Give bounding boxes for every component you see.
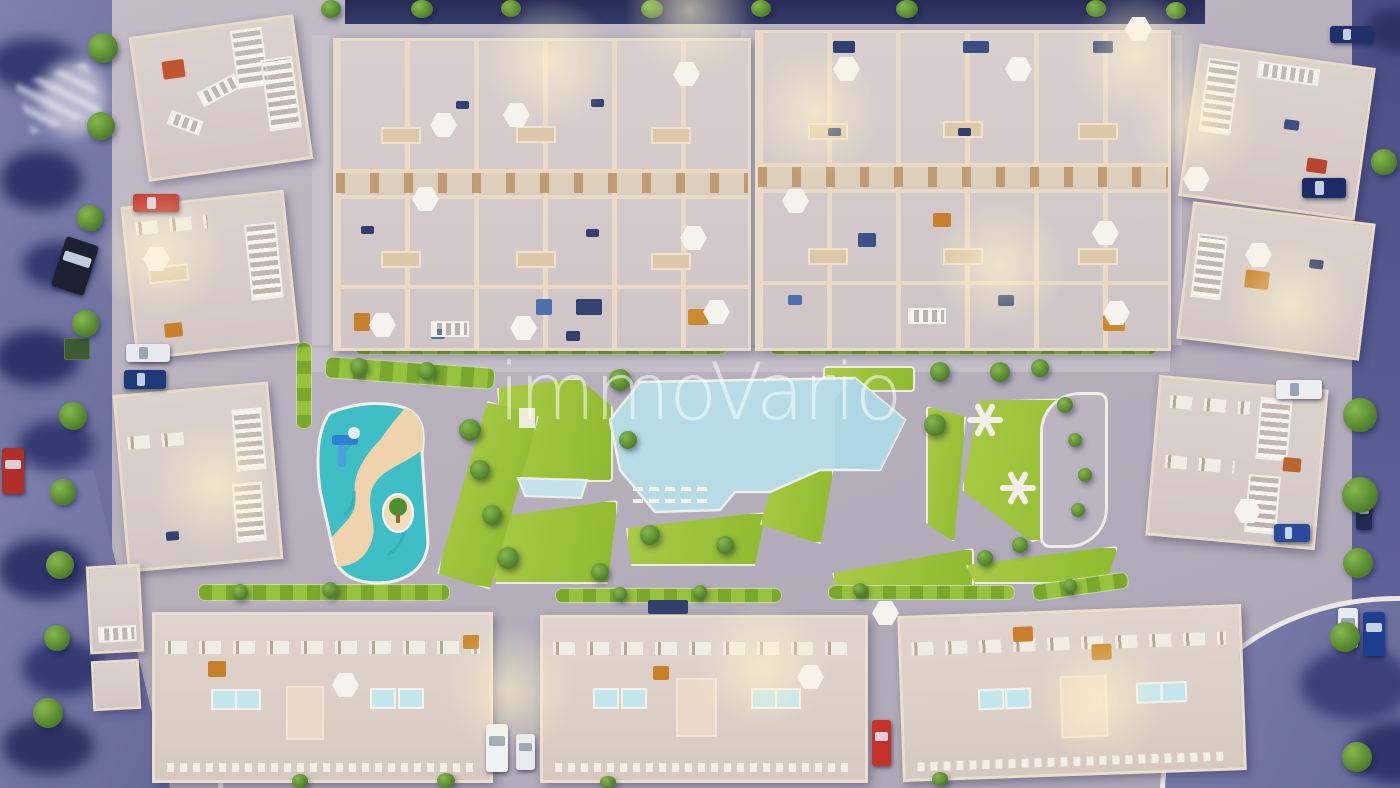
rooftop-planter <box>808 248 848 265</box>
garden-tree <box>1057 397 1073 413</box>
garden-tree <box>924 414 946 436</box>
street-tree <box>751 0 771 17</box>
shadow-blob <box>0 538 90 600</box>
aerial-render-scene: immoVario <box>0 0 1400 788</box>
car-navy <box>1302 178 1346 198</box>
orange-seating <box>164 322 183 338</box>
shadow-blob <box>18 420 94 470</box>
planter-spine <box>758 167 1168 187</box>
car-white <box>516 734 535 770</box>
top-street <box>345 0 1205 24</box>
rooftop-plunge-pool <box>775 688 801 709</box>
window-cluster <box>1093 41 1113 53</box>
window-row <box>1170 395 1251 415</box>
roof-railing <box>1255 397 1292 462</box>
street-tree <box>33 698 63 728</box>
roof-railing <box>232 481 267 542</box>
garden-tree <box>1012 537 1028 553</box>
street-tree <box>437 773 455 788</box>
rooftop-planter <box>516 126 556 143</box>
orange-seating <box>463 635 479 649</box>
rooftop-planter <box>381 127 421 144</box>
orange-seating <box>1091 644 1112 661</box>
patio-furniture <box>788 295 802 305</box>
left-building-2 <box>120 190 299 360</box>
right-building-1 <box>1178 43 1376 220</box>
balcony-row <box>917 752 1229 772</box>
rooftop-plunge-pool <box>370 688 396 709</box>
orange-seating <box>161 59 185 80</box>
window-row <box>127 432 190 450</box>
bottom-middle-building-block <box>540 615 868 783</box>
winding-path <box>1040 392 1108 548</box>
patio-table <box>1283 119 1299 131</box>
window-row <box>165 641 480 654</box>
garden-tree <box>930 362 950 382</box>
hedge-tree <box>853 583 867 597</box>
garden-tree <box>470 460 490 480</box>
rooftop-plunge-pool <box>211 689 237 710</box>
roof-railing <box>1256 61 1320 86</box>
street-tree <box>292 774 308 788</box>
street-tree <box>72 310 99 337</box>
stair-core <box>676 678 717 737</box>
garden-tree <box>497 547 519 569</box>
rooftop-planter <box>1078 248 1118 265</box>
window-cluster <box>963 41 989 53</box>
patio-table <box>586 229 599 237</box>
street-tree <box>1342 477 1378 513</box>
patio-table <box>1309 259 1324 270</box>
orange-seating <box>208 661 226 677</box>
balcony-row <box>167 763 477 772</box>
shadow-blob <box>1300 648 1400 720</box>
street-tree <box>1330 622 1360 652</box>
window-row <box>911 632 1226 656</box>
roof-railing <box>1198 58 1240 136</box>
street-tree <box>321 0 341 18</box>
rooftop-plunge-pool <box>1161 681 1188 703</box>
window-cluster <box>648 600 688 614</box>
street-tree <box>1343 548 1373 578</box>
window-cluster <box>858 233 876 247</box>
left-building-1 <box>129 14 314 182</box>
window-cluster <box>833 41 855 53</box>
patio-table <box>456 101 469 109</box>
window-row <box>135 215 208 235</box>
garden-tree <box>977 550 993 566</box>
hedge-tree <box>232 584 248 600</box>
patio-table <box>166 531 180 541</box>
garden-tree <box>418 362 436 380</box>
bottom-right-building-block <box>897 604 1247 782</box>
road-left-of-center-block <box>312 35 330 345</box>
street-tree <box>44 625 70 651</box>
car-red <box>133 194 179 212</box>
garden-tree <box>1068 433 1082 447</box>
rooftop-plunge-pool <box>621 688 647 709</box>
window-cluster <box>536 299 552 315</box>
street-tree <box>46 551 74 579</box>
roof-railing <box>231 407 266 471</box>
car-navy <box>1330 26 1372 43</box>
bottom-left-building-block <box>152 612 493 783</box>
street-tree <box>87 112 115 140</box>
rooftop-plunge-pool <box>978 688 1005 710</box>
rooftop-planter <box>651 127 691 144</box>
shadow-blob <box>0 150 82 210</box>
orange-seating <box>1013 626 1034 642</box>
orange-seating <box>933 213 951 227</box>
street-tree <box>88 33 118 63</box>
street-tree <box>1342 742 1372 772</box>
window-row <box>1164 455 1235 474</box>
van-white <box>486 724 508 772</box>
rooftop-plunge-pool <box>751 688 777 709</box>
garden-tree <box>716 536 734 554</box>
street-tree <box>1343 398 1377 432</box>
garden-tree <box>640 525 660 545</box>
garden-tree <box>591 563 609 581</box>
patio-table <box>591 99 604 107</box>
street-tree <box>896 0 918 18</box>
play-structure <box>965 400 1005 440</box>
entrance-structure-small <box>91 659 142 711</box>
window-row <box>553 642 853 655</box>
balcony-row <box>555 763 853 772</box>
canopy <box>98 625 137 643</box>
left-building-3 <box>113 382 284 573</box>
green-dumpster <box>64 338 90 360</box>
garden-tree <box>350 358 368 376</box>
garden-tree <box>1031 359 1049 377</box>
hedge-tree <box>613 587 627 601</box>
orange-seating <box>354 313 370 331</box>
patio-table <box>958 128 971 136</box>
street-tree <box>501 0 521 17</box>
rooftop-planter <box>1078 123 1118 140</box>
stair-core <box>1059 675 1108 739</box>
roof-railing <box>260 56 302 132</box>
car-navy <box>124 370 166 389</box>
car-blue <box>1274 524 1310 542</box>
patio-table <box>361 226 374 234</box>
pickup-blue <box>1363 612 1385 656</box>
terrace-wall <box>336 195 748 199</box>
rooftop-plunge-pool <box>398 688 424 709</box>
rooftop-plunge-pool <box>1005 687 1032 709</box>
watermark-text: immoVario <box>499 348 902 438</box>
car-white <box>126 344 170 362</box>
planter-spine <box>336 173 748 193</box>
rooftop-planter <box>943 248 983 265</box>
hedge-tree <box>322 582 338 598</box>
orange-seating <box>1244 269 1270 290</box>
splash-pool <box>308 395 446 590</box>
terrace-wall <box>336 285 748 289</box>
rooftop-planter <box>381 251 421 268</box>
car-red <box>2 448 24 494</box>
garden-tree <box>1071 503 1085 517</box>
street-tree <box>77 205 103 231</box>
white-lounger <box>431 321 469 337</box>
rooftop-planter <box>651 253 691 270</box>
patio-furniture <box>566 331 580 341</box>
van-white <box>1276 380 1322 399</box>
roof-railing <box>244 222 284 301</box>
terrace-wall <box>758 189 1168 193</box>
white-lounger <box>908 308 946 324</box>
hedge-tree <box>1063 579 1077 593</box>
white-lounger <box>167 110 204 136</box>
street-tree <box>1166 2 1186 19</box>
rooftop-planter <box>516 251 556 268</box>
rooftop-plunge-pool <box>1136 682 1163 704</box>
orange-seating <box>1282 457 1301 473</box>
garden-tree <box>459 419 481 441</box>
entrance-structure <box>86 564 145 655</box>
garden-tree <box>1078 468 1092 482</box>
street-tree <box>59 402 87 430</box>
terrace-wall <box>758 281 1168 285</box>
patio-table <box>828 128 841 136</box>
garden-tree <box>990 362 1010 382</box>
window-cluster <box>576 299 602 315</box>
patio-furniture <box>998 295 1014 306</box>
street-tree <box>600 776 616 788</box>
orange-seating <box>653 666 669 680</box>
stair-core <box>286 686 324 740</box>
right-building-2 <box>1176 201 1375 360</box>
roof-railing <box>1190 233 1228 300</box>
orange-seating <box>1306 158 1328 175</box>
street-tree <box>411 0 433 18</box>
top-right-building-block <box>755 30 1171 351</box>
play-structure <box>998 468 1038 508</box>
street-tree <box>50 479 76 505</box>
rooftop-plunge-pool <box>235 689 261 710</box>
car-red <box>872 720 891 766</box>
garden-tree <box>482 505 502 525</box>
rooftop-plunge-pool <box>593 688 619 709</box>
hedge-tree <box>693 585 707 599</box>
rooftop-stairs <box>197 73 242 107</box>
street-tree <box>1371 149 1397 175</box>
street-tree <box>1086 0 1106 17</box>
street-tree <box>932 772 948 786</box>
street-tree <box>641 0 663 18</box>
